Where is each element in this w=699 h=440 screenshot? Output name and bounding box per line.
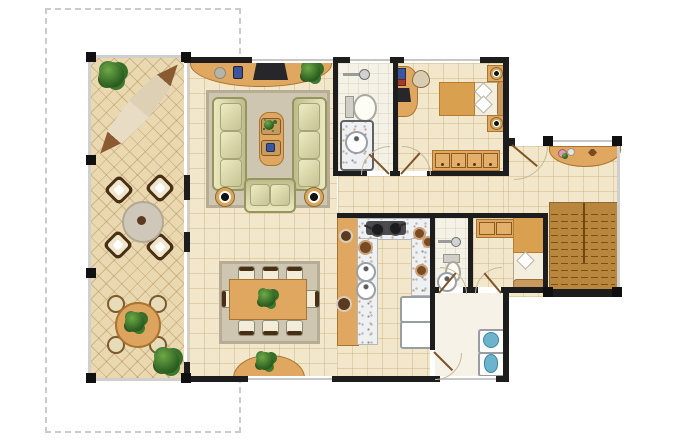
sliding-door-track (187, 63, 189, 376)
pan (370, 222, 385, 237)
window-glass (404, 59, 480, 61)
window-glass (350, 59, 390, 61)
wall (427, 171, 509, 176)
patio-edge (88, 55, 186, 58)
pillar (86, 52, 96, 62)
toilet (353, 94, 377, 122)
floorplan-canvas (0, 0, 699, 440)
wall-stub (184, 232, 190, 252)
wall (503, 293, 509, 382)
pillar (86, 373, 96, 383)
patio-edge (88, 378, 186, 381)
window-glass (252, 59, 336, 61)
wall (332, 376, 440, 382)
sofa-cushion (220, 159, 242, 187)
flower-vase (567, 148, 575, 156)
kitchen-appliance (400, 296, 434, 323)
sofa (212, 97, 247, 191)
pillar (543, 287, 553, 297)
loveseat (244, 178, 296, 213)
tub-basin (483, 332, 499, 348)
table-centerpiece (137, 216, 146, 225)
wall (337, 213, 548, 218)
wall (503, 57, 509, 176)
knob (441, 163, 444, 166)
sofa-cushion (250, 184, 270, 206)
console-item (233, 66, 243, 79)
wall (184, 57, 252, 63)
washer-basin (484, 354, 498, 373)
chair-back (239, 331, 254, 335)
tv (253, 63, 288, 80)
chair-back (315, 291, 319, 307)
wardrobe-door (451, 153, 466, 168)
bed-blanket (439, 82, 475, 116)
dining-chair (238, 320, 255, 336)
patio-edge (88, 55, 91, 381)
maid-wardrobe (476, 219, 514, 238)
chair-back (222, 291, 226, 307)
knob (473, 163, 476, 166)
flower-greens (562, 153, 568, 159)
table-lamp (490, 67, 503, 80)
serving-plate (339, 229, 353, 243)
hallway-floor (338, 176, 508, 213)
shower-bar (438, 240, 451, 243)
wall (183, 376, 248, 382)
pillar (86, 155, 96, 165)
tray-plant (264, 120, 274, 130)
kitchen-sink (356, 280, 376, 300)
sofa-cushion (298, 131, 320, 159)
pillar (181, 373, 191, 383)
chair-back (239, 267, 254, 271)
bed-blanket (513, 215, 545, 253)
dining-chair (262, 320, 279, 336)
shower-head (359, 69, 370, 80)
sofa (292, 97, 327, 191)
wall (393, 63, 398, 176)
window-wall (617, 146, 620, 287)
wall (496, 376, 509, 382)
window-glass (440, 378, 496, 380)
wall (390, 171, 400, 176)
potted-plant (154, 348, 180, 374)
sofa-cushion (220, 131, 242, 159)
pillar (543, 136, 553, 146)
kitchen-bowl (415, 264, 428, 277)
sofa-cushion (270, 184, 290, 206)
shower-head (451, 237, 461, 247)
floor-lamp (304, 187, 324, 207)
console-dish (214, 67, 226, 79)
wall (543, 289, 622, 297)
tray-item (266, 143, 275, 152)
pillar (181, 52, 191, 62)
knob (457, 163, 460, 166)
pillar (612, 136, 622, 146)
sofa-cushion (298, 159, 320, 187)
chair-back (263, 331, 278, 335)
wardrobe (432, 150, 500, 171)
kitchen-sink (356, 262, 376, 282)
wall (333, 57, 338, 176)
wall (336, 57, 350, 63)
wall-stub (184, 175, 190, 200)
dining-centerpiece-plant (258, 289, 276, 307)
sofa-cushion (220, 103, 242, 131)
stair-rail (583, 203, 585, 263)
console-plant (301, 62, 321, 82)
potted-plant (99, 62, 125, 88)
kitchen-bowl (358, 240, 373, 255)
window-glass (248, 378, 332, 380)
wardrobe-door (479, 222, 495, 235)
window-glass (553, 140, 612, 142)
kitchen-appliance (400, 321, 434, 349)
dining-chair (286, 320, 303, 336)
wall (430, 218, 435, 350)
pillar (612, 287, 622, 297)
sofa-cushion (298, 103, 320, 131)
wall (468, 218, 473, 287)
chair-back (287, 331, 302, 335)
table-plant (125, 312, 145, 332)
table-lamp (490, 117, 503, 130)
planter-plant (256, 352, 274, 370)
dining-chair (305, 290, 320, 308)
chair-back (263, 267, 278, 271)
wardrobe-door (467, 153, 482, 168)
wardrobe-door (435, 153, 450, 168)
shower-bar (343, 73, 359, 76)
knob (489, 163, 492, 166)
wardrobe-door (496, 222, 512, 235)
pillar (86, 268, 96, 278)
floor-lamp (215, 187, 235, 207)
serving-plate (336, 296, 352, 312)
wall (543, 218, 548, 293)
wardrobe-door (483, 153, 498, 168)
vanity-sink (345, 131, 368, 154)
desk-chair (412, 70, 430, 88)
chair-back (287, 267, 302, 271)
